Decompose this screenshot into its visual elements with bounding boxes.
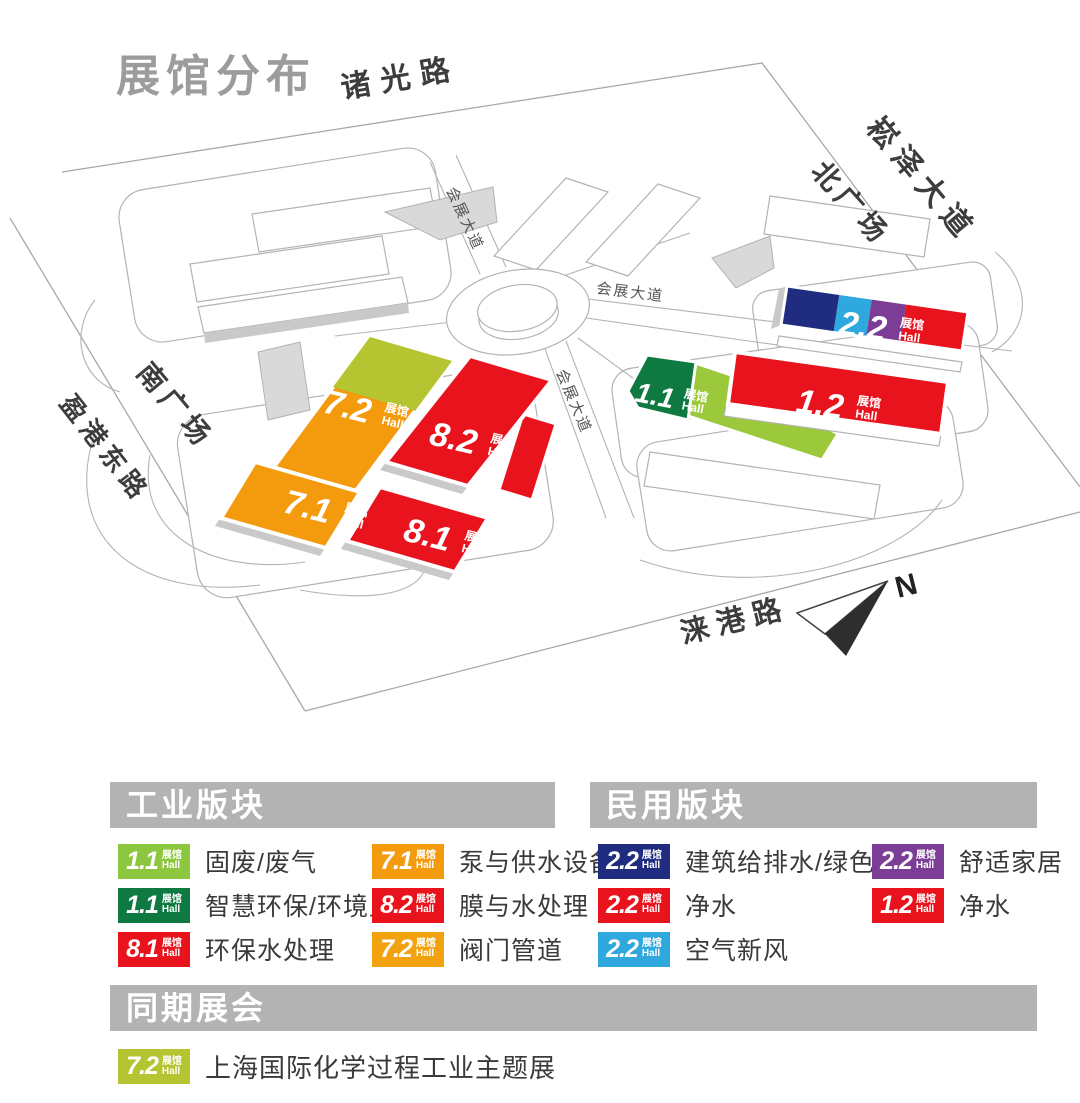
compass: N [797,568,921,656]
industrial-legend-col-2: 7.1 展馆Hall 泵与供水设备 8.2 展馆Hall 膜与水处理 7.2 展… [372,843,615,967]
hall-badge-1-1-darkgreen: 1.1 展馆Hall [118,888,190,923]
svg-text:南广场: 南广场 [131,357,220,455]
road-label-expo-ave-s: 会展大道 [552,367,594,436]
legend-label: 泵与供水设备 [459,843,615,879]
swoosh-east [992,252,1022,352]
hall-badge-8-2: 8.2 展馆Hall [372,888,444,923]
road-label-zhuguang: 诸光路 [338,52,462,105]
section-header-civil: 民用版块 [590,782,1037,828]
hall-badge-2-2-red: 2.2 展馆Hall [598,888,670,923]
legend-label: 环保水处理 [205,931,335,967]
svg-text:诸光路: 诸光路 [338,52,462,105]
gray-block-northeast [712,236,774,288]
hall-badge-7-2-orange: 7.2 展馆Hall [372,932,444,967]
section-header-industrial: 工业版块 [110,782,555,828]
legend-item: 7.2 展馆Hall 上海国际化学过程工业主题展 [118,1048,556,1085]
hall-badge-2-2-lightblue: 2.2 展馆Hall [598,932,670,967]
legend-item: 2.2 展馆Hall 舒适家居 [872,843,1063,879]
hall-badge-2-2-navy: 2.2 展馆Hall [598,844,670,879]
hall-badge-1-2: 1.2 展馆Hall [872,888,944,923]
legend-label: 膜与水处理 [459,887,589,923]
gray-block-west [258,342,310,420]
hall-badge-2-2-purple: 2.2 展馆Hall [872,844,944,879]
hall-badge-1-1-lightgreen: 1.1 展馆Hall [118,844,190,879]
civil-legend-col-2: 2.2 展馆Hall 舒适家居 1.2 展馆Hall 净水 [872,843,1063,923]
road-label-yinggang: 盈港东路 [53,388,156,508]
road-west [335,322,452,336]
legend-label: 舒适家居 [959,843,1063,879]
venue-map: 7.2 展馆 Hall 7.1 展馆 Hall 8.2 展馆 Hall 8.1 … [0,0,1080,775]
svg-text:2.2: 2.2 [836,304,889,348]
legend-item: 7.1 展馆Hall 泵与供水设备 [372,843,615,879]
legend-item: 8.2 展馆Hall 膜与水处理 [372,887,615,923]
legend-item: 2.2 展馆Hall 空气新风 [598,931,927,967]
legend-item: 7.2 展馆Hall 阀门管道 [372,931,615,967]
svg-text:1.2: 1.2 [794,382,846,426]
concurrent-legend: 7.2 展馆Hall 上海国际化学过程工业主题展 [118,1048,556,1085]
hall-badge-7-1: 7.1 展馆Hall [372,844,444,879]
svg-text:盈港东路: 盈港东路 [53,388,156,508]
legend-label: 上海国际化学过程工业主题展 [205,1048,556,1085]
hall-badge-8-1: 8.1 展馆Hall [118,932,190,967]
legend-label: 净水 [685,887,737,923]
central-ring [440,259,595,364]
legend-label: 净水 [959,887,1011,923]
legend-label: 空气新风 [685,931,789,967]
section-header-concurrent: 同期展会 [110,985,1037,1031]
road-label-south-plaza: 南广场 [131,357,220,455]
hall-badge-7-2-yellowgreen: 7.2 展馆Hall [118,1049,190,1084]
legend-item: 1.2 展馆Hall 净水 [872,887,1063,923]
legend-label: 阀门管道 [459,931,563,967]
svg-text:会展大道: 会展大道 [552,367,594,436]
compass-n-label: N [892,568,921,605]
legend-label: 固废/废气 [205,843,317,879]
